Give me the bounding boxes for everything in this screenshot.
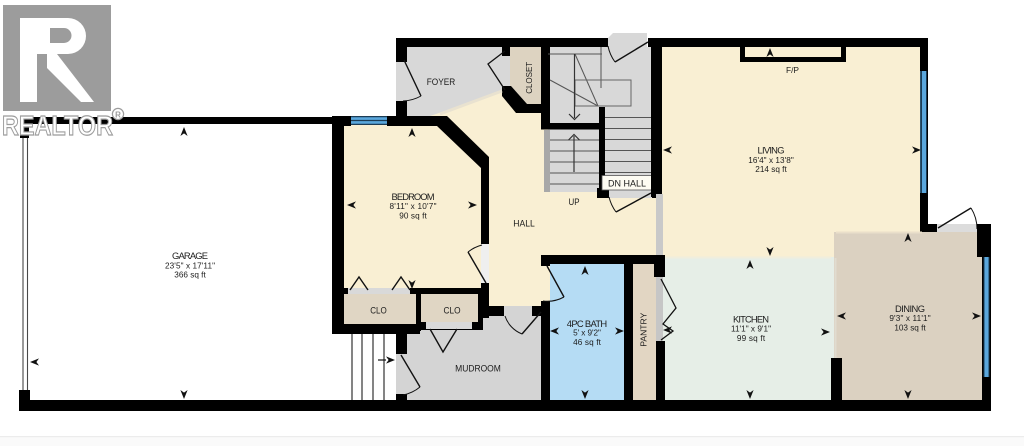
svg-text:CLOSET: CLOSET	[524, 62, 534, 94]
svg-text:8'11" x 10'7": 8'11" x 10'7"	[390, 202, 437, 211]
svg-text:103 sq ft: 103 sq ft	[894, 323, 926, 332]
svg-text:23'5" x 17'11": 23'5" x 17'11"	[165, 261, 215, 270]
svg-text:CLO: CLO	[444, 304, 461, 315]
svg-text:GARAGE: GARAGE	[172, 250, 208, 261]
svg-text:366 sq ft: 366 sq ft	[174, 271, 206, 280]
svg-text:KITCHEN: KITCHEN	[733, 314, 769, 325]
svg-text:REALTOR: REALTOR	[2, 110, 113, 141]
svg-text:5' x 9'2": 5' x 9'2"	[573, 329, 601, 338]
svg-text:4PC BATH: 4PC BATH	[567, 318, 607, 329]
svg-text:FOYER: FOYER	[427, 76, 456, 87]
svg-text:90 sq ft: 90 sq ft	[399, 212, 427, 221]
svg-text:UP: UP	[569, 196, 580, 207]
svg-text:11'1" x 9'1": 11'1" x 9'1"	[731, 325, 771, 334]
svg-text:214 sq ft: 214 sq ft	[755, 165, 787, 174]
svg-text:DINING: DINING	[895, 303, 925, 314]
svg-text:LIVING: LIVING	[758, 145, 785, 156]
svg-text:CLO: CLO	[370, 304, 387, 315]
svg-text:F/P: F/P	[786, 66, 800, 75]
svg-text:DN HALL: DN HALL	[608, 177, 646, 188]
svg-text:BEDROOM: BEDROOM	[392, 191, 435, 202]
svg-text:HALL: HALL	[513, 218, 535, 229]
svg-text:99 sq ft: 99 sq ft	[737, 334, 766, 343]
svg-text:16'4" x 13'8": 16'4" x 13'8"	[748, 156, 794, 165]
svg-text:MUDROOM: MUDROOM	[455, 362, 501, 373]
svg-text:PANTRY: PANTRY	[638, 312, 648, 346]
svg-text:46 sq ft: 46 sq ft	[573, 338, 602, 347]
svg-text:R: R	[115, 111, 121, 120]
svg-text:9'3" x 11'1": 9'3" x 11'1"	[889, 314, 930, 323]
